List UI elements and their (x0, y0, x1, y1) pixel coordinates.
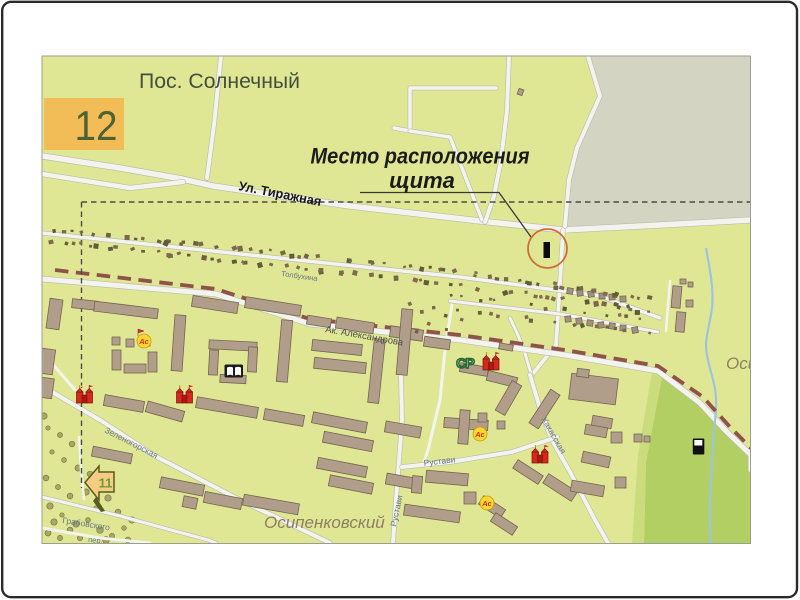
svg-text:щита: щита (389, 168, 455, 193)
svg-text:Место расположения: Место расположения (311, 144, 530, 169)
svg-text:11: 11 (99, 476, 113, 491)
svg-text:Пос. Солнечный: Пос. Солнечный (139, 70, 300, 93)
svg-text:12: 12 (75, 102, 118, 149)
svg-text:СР: СР (456, 355, 474, 371)
svg-text:Осипенковский: Осипенковский (264, 513, 385, 532)
